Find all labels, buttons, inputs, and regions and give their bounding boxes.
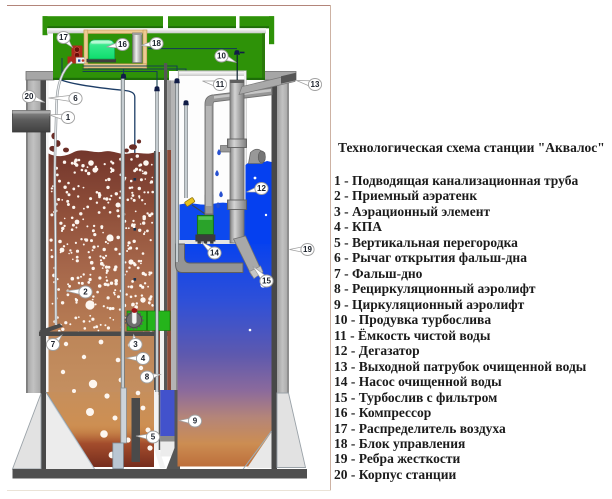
svg-text:15: 15 bbox=[262, 277, 271, 286]
svg-text:5: 5 bbox=[151, 433, 156, 442]
svg-text:6: 6 bbox=[73, 94, 78, 103]
svg-text:20: 20 bbox=[25, 92, 34, 101]
svg-text:14: 14 bbox=[210, 249, 219, 258]
svg-text:8: 8 bbox=[145, 373, 150, 382]
svg-text:10: 10 bbox=[217, 52, 226, 61]
svg-text:4: 4 bbox=[141, 354, 146, 363]
svg-text:12: 12 bbox=[257, 184, 266, 193]
svg-text:19: 19 bbox=[303, 245, 312, 254]
svg-text:2: 2 bbox=[83, 288, 88, 297]
svg-text:13: 13 bbox=[311, 80, 320, 89]
svg-text:9: 9 bbox=[193, 417, 198, 426]
svg-text:18: 18 bbox=[152, 39, 161, 48]
svg-text:17: 17 bbox=[59, 33, 68, 42]
svg-text:7: 7 bbox=[51, 340, 56, 349]
svg-text:3: 3 bbox=[133, 340, 138, 349]
svg-text:16: 16 bbox=[118, 40, 127, 49]
svg-text:1: 1 bbox=[66, 113, 71, 122]
svg-text:11: 11 bbox=[216, 80, 225, 89]
